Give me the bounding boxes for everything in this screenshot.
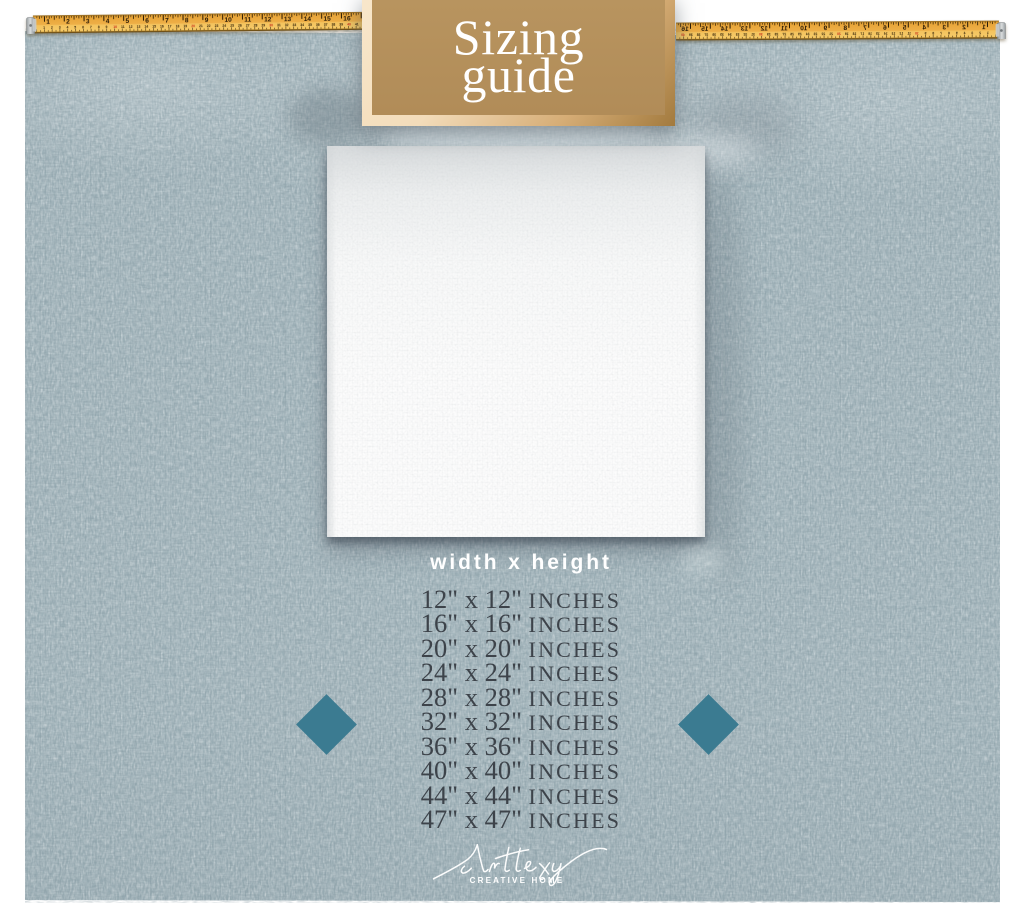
svg-text:15: 15 xyxy=(701,26,709,33)
svg-text:4: 4 xyxy=(67,25,69,29)
svg-text:15: 15 xyxy=(323,15,331,22)
svg-text:3: 3 xyxy=(971,31,973,35)
svg-text:4: 4 xyxy=(922,24,926,31)
svg-text:29: 29 xyxy=(767,32,771,36)
svg-text:2: 2 xyxy=(51,25,53,29)
svg-text:1: 1 xyxy=(46,18,50,25)
svg-text:28: 28 xyxy=(254,23,258,27)
svg-text:31: 31 xyxy=(751,32,755,36)
svg-text:5: 5 xyxy=(74,25,76,29)
svg-text:1: 1 xyxy=(43,25,45,29)
svg-text:39: 39 xyxy=(339,22,343,26)
svg-text:7: 7 xyxy=(940,31,942,35)
svg-text:31: 31 xyxy=(277,23,281,27)
svg-text:1: 1 xyxy=(987,31,989,35)
svg-text:34: 34 xyxy=(300,23,304,27)
svg-text:18: 18 xyxy=(853,32,857,36)
svg-text:9: 9 xyxy=(205,17,209,24)
svg-text:29: 29 xyxy=(261,23,265,27)
svg-text:17: 17 xyxy=(168,24,172,28)
svg-text:11: 11 xyxy=(907,31,911,35)
svg-text:22: 22 xyxy=(821,32,825,36)
svg-text:12: 12 xyxy=(129,25,133,29)
svg-text:38: 38 xyxy=(331,22,335,26)
svg-text:11: 11 xyxy=(121,25,125,29)
svg-text:25: 25 xyxy=(798,32,802,36)
svg-text:6: 6 xyxy=(82,25,84,29)
svg-text:20: 20 xyxy=(191,24,195,28)
svg-text:10: 10 xyxy=(113,25,117,29)
svg-text:8: 8 xyxy=(932,31,934,35)
svg-text:7: 7 xyxy=(863,25,867,32)
svg-text:39: 39 xyxy=(689,33,693,37)
svg-text:30: 30 xyxy=(269,23,273,27)
svg-text:11: 11 xyxy=(244,16,251,23)
svg-text:25: 25 xyxy=(230,23,234,27)
svg-text:18: 18 xyxy=(176,24,180,28)
svg-text:17: 17 xyxy=(860,32,864,36)
svg-text:4: 4 xyxy=(964,31,966,35)
svg-text:10: 10 xyxy=(800,25,808,32)
svg-text:33: 33 xyxy=(292,23,296,27)
svg-text:13: 13 xyxy=(137,24,141,28)
svg-text:14: 14 xyxy=(144,24,148,28)
svg-text:5: 5 xyxy=(125,18,129,25)
svg-text:41: 41 xyxy=(355,22,359,26)
svg-text:6: 6 xyxy=(145,17,149,24)
svg-text:32: 32 xyxy=(743,32,747,36)
svg-text:12: 12 xyxy=(264,16,272,23)
svg-text:9: 9 xyxy=(106,25,108,29)
svg-text:8: 8 xyxy=(98,25,100,29)
svg-text:20: 20 xyxy=(837,32,841,36)
svg-text:3: 3 xyxy=(86,18,90,25)
svg-text:6: 6 xyxy=(948,31,950,35)
svg-text:28: 28 xyxy=(775,32,779,36)
svg-text:38: 38 xyxy=(697,33,701,37)
svg-text:16: 16 xyxy=(868,32,872,36)
svg-text:13: 13 xyxy=(284,16,292,23)
svg-text:34: 34 xyxy=(728,32,732,36)
svg-text:3: 3 xyxy=(59,25,61,29)
svg-text:12: 12 xyxy=(899,31,903,35)
svg-text:19: 19 xyxy=(845,32,849,36)
svg-text:2: 2 xyxy=(66,18,70,25)
svg-text:2: 2 xyxy=(962,24,966,31)
svg-text:5: 5 xyxy=(902,24,906,31)
svg-text:14: 14 xyxy=(304,16,312,23)
svg-text:23: 23 xyxy=(215,24,219,28)
svg-text:12: 12 xyxy=(760,25,768,32)
svg-text:13: 13 xyxy=(740,25,748,32)
svg-text:33: 33 xyxy=(736,32,740,36)
svg-text:19: 19 xyxy=(183,24,187,28)
svg-text:21: 21 xyxy=(199,24,203,28)
svg-text:40: 40 xyxy=(347,22,351,26)
svg-text:36: 36 xyxy=(316,23,320,27)
svg-text:40: 40 xyxy=(681,33,685,37)
svg-text:27: 27 xyxy=(782,32,786,36)
svg-text:9: 9 xyxy=(823,25,827,32)
svg-text:35: 35 xyxy=(720,33,724,37)
svg-text:30: 30 xyxy=(759,32,763,36)
svg-text:32: 32 xyxy=(285,23,289,27)
svg-text:7: 7 xyxy=(165,17,169,24)
svg-text:15: 15 xyxy=(876,32,880,36)
svg-text:14: 14 xyxy=(721,25,729,32)
svg-text:24: 24 xyxy=(806,32,810,36)
svg-text:4: 4 xyxy=(106,18,110,25)
svg-text:26: 26 xyxy=(238,23,242,27)
svg-text:26: 26 xyxy=(790,32,794,36)
svg-text:37: 37 xyxy=(324,22,328,26)
svg-text:22: 22 xyxy=(207,24,211,28)
svg-text:15: 15 xyxy=(152,24,156,28)
svg-text:24: 24 xyxy=(222,24,226,28)
svg-text:8: 8 xyxy=(185,17,189,24)
svg-text:8: 8 xyxy=(843,25,847,32)
svg-text:37: 37 xyxy=(704,33,708,37)
svg-text:36: 36 xyxy=(712,33,716,37)
svg-text:10: 10 xyxy=(224,16,232,23)
svg-text:14: 14 xyxy=(884,32,888,36)
svg-text:6: 6 xyxy=(883,25,887,32)
svg-text:5: 5 xyxy=(956,31,958,35)
svg-text:10: 10 xyxy=(915,31,919,35)
svg-text:11: 11 xyxy=(780,25,787,32)
svg-text:16: 16 xyxy=(160,24,164,28)
svg-text:27: 27 xyxy=(246,23,250,27)
svg-text:2: 2 xyxy=(979,31,981,35)
svg-text:16: 16 xyxy=(343,15,351,22)
svg-text:3: 3 xyxy=(942,24,946,31)
svg-text:16: 16 xyxy=(681,26,689,33)
svg-text:21: 21 xyxy=(829,32,833,36)
svg-text:23: 23 xyxy=(814,32,818,36)
svg-text:1: 1 xyxy=(982,24,986,31)
svg-text:35: 35 xyxy=(308,23,312,27)
svg-text:13: 13 xyxy=(892,31,896,35)
svg-text:7: 7 xyxy=(90,25,92,29)
svg-text:9: 9 xyxy=(925,31,927,35)
